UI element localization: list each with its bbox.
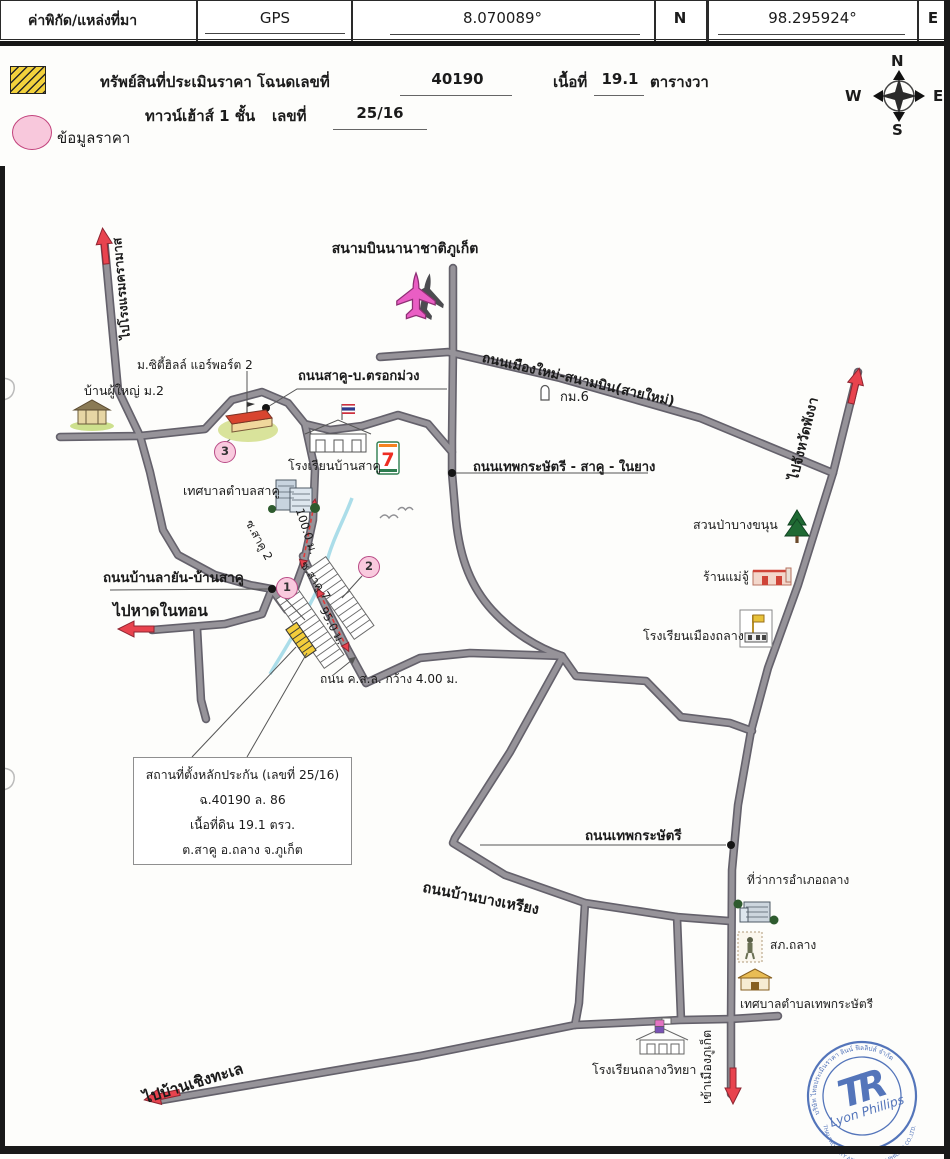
collateral-info-box: สถานที่ตั้งหลักประกัน (เลขที่ 25/16) ฉ.4… bbox=[133, 757, 352, 865]
price-marker-2: 2 bbox=[358, 556, 380, 578]
naithon-label: ไปหาดในทอน bbox=[113, 598, 208, 623]
underline bbox=[400, 95, 512, 96]
village-house-icon bbox=[70, 400, 114, 431]
divider bbox=[196, 1, 198, 41]
thep-municipality-label: เทศบาลตำบลเทพกระษัตรี bbox=[740, 995, 873, 1014]
to-city-label: เข้าเมืองภูเก็ต bbox=[697, 1030, 717, 1104]
sakhu-trokmuang-road-label: ถนนสาคู-บ.ตรอกม่วง bbox=[298, 365, 419, 386]
school-ban-sakhu-label: โรงเรียนบ้านสาคู bbox=[288, 456, 381, 476]
house-no-label: เลขที่ bbox=[272, 104, 306, 128]
price-data-marker-icon bbox=[12, 115, 52, 150]
divider bbox=[706, 1, 709, 41]
coords-source-label: ค่าพิกัด/แหล่งที่มา bbox=[28, 10, 137, 32]
appraisal-map-page: 7 bbox=[0, 0, 950, 1159]
underline bbox=[390, 34, 640, 35]
deed-number: 40190 bbox=[405, 70, 510, 88]
thep-municipality-icon bbox=[738, 969, 772, 990]
divider bbox=[351, 1, 353, 41]
page-border-bottom bbox=[0, 1146, 950, 1154]
city-hill-label: ม.ซิตี้ฮิลล์ แอร์พอร์ต 2 bbox=[137, 356, 253, 375]
km6-label: กม.6 bbox=[560, 386, 589, 407]
forest-label: สวนป่าบางขนุน bbox=[693, 515, 778, 535]
underline bbox=[594, 95, 644, 96]
sakhu-municipality-label: เทศบาลตำบลสาคู bbox=[183, 481, 280, 501]
thep-sakhu-naiyang-road-label: ถนนเทพกระษัตรี - สาคู - ในยาง bbox=[473, 456, 655, 477]
price-data-label: ข้อมูลราคา bbox=[57, 126, 130, 150]
area-value: 19.1 bbox=[596, 70, 644, 88]
school-thalang-witthaya-label: โรงเรียนถลางวิทยา bbox=[592, 1060, 696, 1080]
price-marker-1: 1 bbox=[276, 577, 298, 599]
bird-doodles bbox=[380, 508, 413, 519]
page-border-right bbox=[944, 0, 950, 1159]
airport-label: สนามบินนานาชาติภูเก็ต bbox=[295, 238, 515, 260]
area-unit: ตารางวา bbox=[650, 70, 709, 94]
price-marker-3: 3 bbox=[214, 441, 236, 463]
underline bbox=[205, 33, 345, 34]
info-line-3: เนื้อที่ดิน 19.1 ตรว. bbox=[134, 813, 351, 838]
arrow-to-naithon bbox=[118, 621, 154, 637]
lat-hemisphere: N bbox=[655, 9, 705, 27]
school-muang-thalang-icon bbox=[740, 610, 772, 647]
km6-milestone-icon bbox=[541, 386, 549, 401]
school-muang-thalang-label: โรงเรียนเมืองถลาง bbox=[643, 626, 744, 646]
page-border-left bbox=[0, 166, 5, 1154]
district-office-label: ที่ว่าการอำเภอถลาง bbox=[747, 871, 849, 890]
compass-w: W bbox=[845, 87, 862, 105]
police-label: สภ.ถลาง bbox=[770, 936, 816, 955]
mae-ju-label: ร้านแม่จู้ bbox=[703, 567, 749, 587]
compass-n: N bbox=[891, 52, 904, 70]
info-line-4: ต.สาคู อ.ถลาง จ.ภูเก็ต bbox=[134, 838, 351, 863]
compass-rose-icon bbox=[873, 70, 925, 122]
ban-phuyai-label: บ้านผู้ใหญ่ ม.2 bbox=[84, 381, 164, 401]
svg-text:7: 7 bbox=[381, 449, 394, 471]
police-station-icon bbox=[738, 932, 762, 962]
latitude-value: 8.070089° bbox=[360, 9, 645, 27]
company-stamp: บริษัท ไทยประเมินราคา ลินน์ ฟิลลิปส์ จำก… bbox=[794, 1028, 936, 1159]
property-line-prefix: ทรัพย์สินที่ประเมินราคา โฉนดเลขที่ bbox=[100, 70, 330, 94]
csl-road-label: ถนน ค.ส.ล. กว้าง 4.00 ม. bbox=[320, 670, 458, 689]
junction-dot bbox=[727, 841, 735, 849]
flag-marker-icon bbox=[655, 1020, 664, 1033]
layan-sakhu-road-label: ถนนบ้านลายัน-บ้านสาคู bbox=[103, 566, 244, 588]
info-line-1: สถานที่ตั้งหลักประกัน (เลขที่ 25/16) bbox=[134, 763, 351, 788]
underline bbox=[333, 129, 427, 130]
header-separator bbox=[0, 41, 950, 46]
thep-road-label: ถนนเทพกระษัตรี bbox=[585, 824, 682, 846]
airplane-icon bbox=[397, 270, 449, 322]
longitude-value: 98.295924° bbox=[710, 9, 915, 27]
gps-source-value: GPS bbox=[205, 9, 345, 27]
building-type: ทาวน์เฮ้าส์ 1 ชั้น bbox=[145, 104, 255, 128]
junction-dot bbox=[448, 469, 456, 477]
underline bbox=[718, 34, 905, 35]
pine-tree-icon bbox=[785, 510, 809, 543]
mae-ju-shop-icon bbox=[753, 568, 791, 585]
subject-property-swatch-icon bbox=[10, 66, 46, 94]
junction-dot bbox=[268, 585, 276, 593]
compass-e: E bbox=[933, 87, 943, 105]
info-line-2: ฉ.40190 ล. 86 bbox=[134, 788, 351, 813]
compass-s: S bbox=[892, 121, 903, 139]
house-no: 25/16 bbox=[335, 104, 425, 122]
district-office-icon bbox=[734, 900, 779, 925]
area-label: เนื้อที่ bbox=[553, 70, 587, 94]
